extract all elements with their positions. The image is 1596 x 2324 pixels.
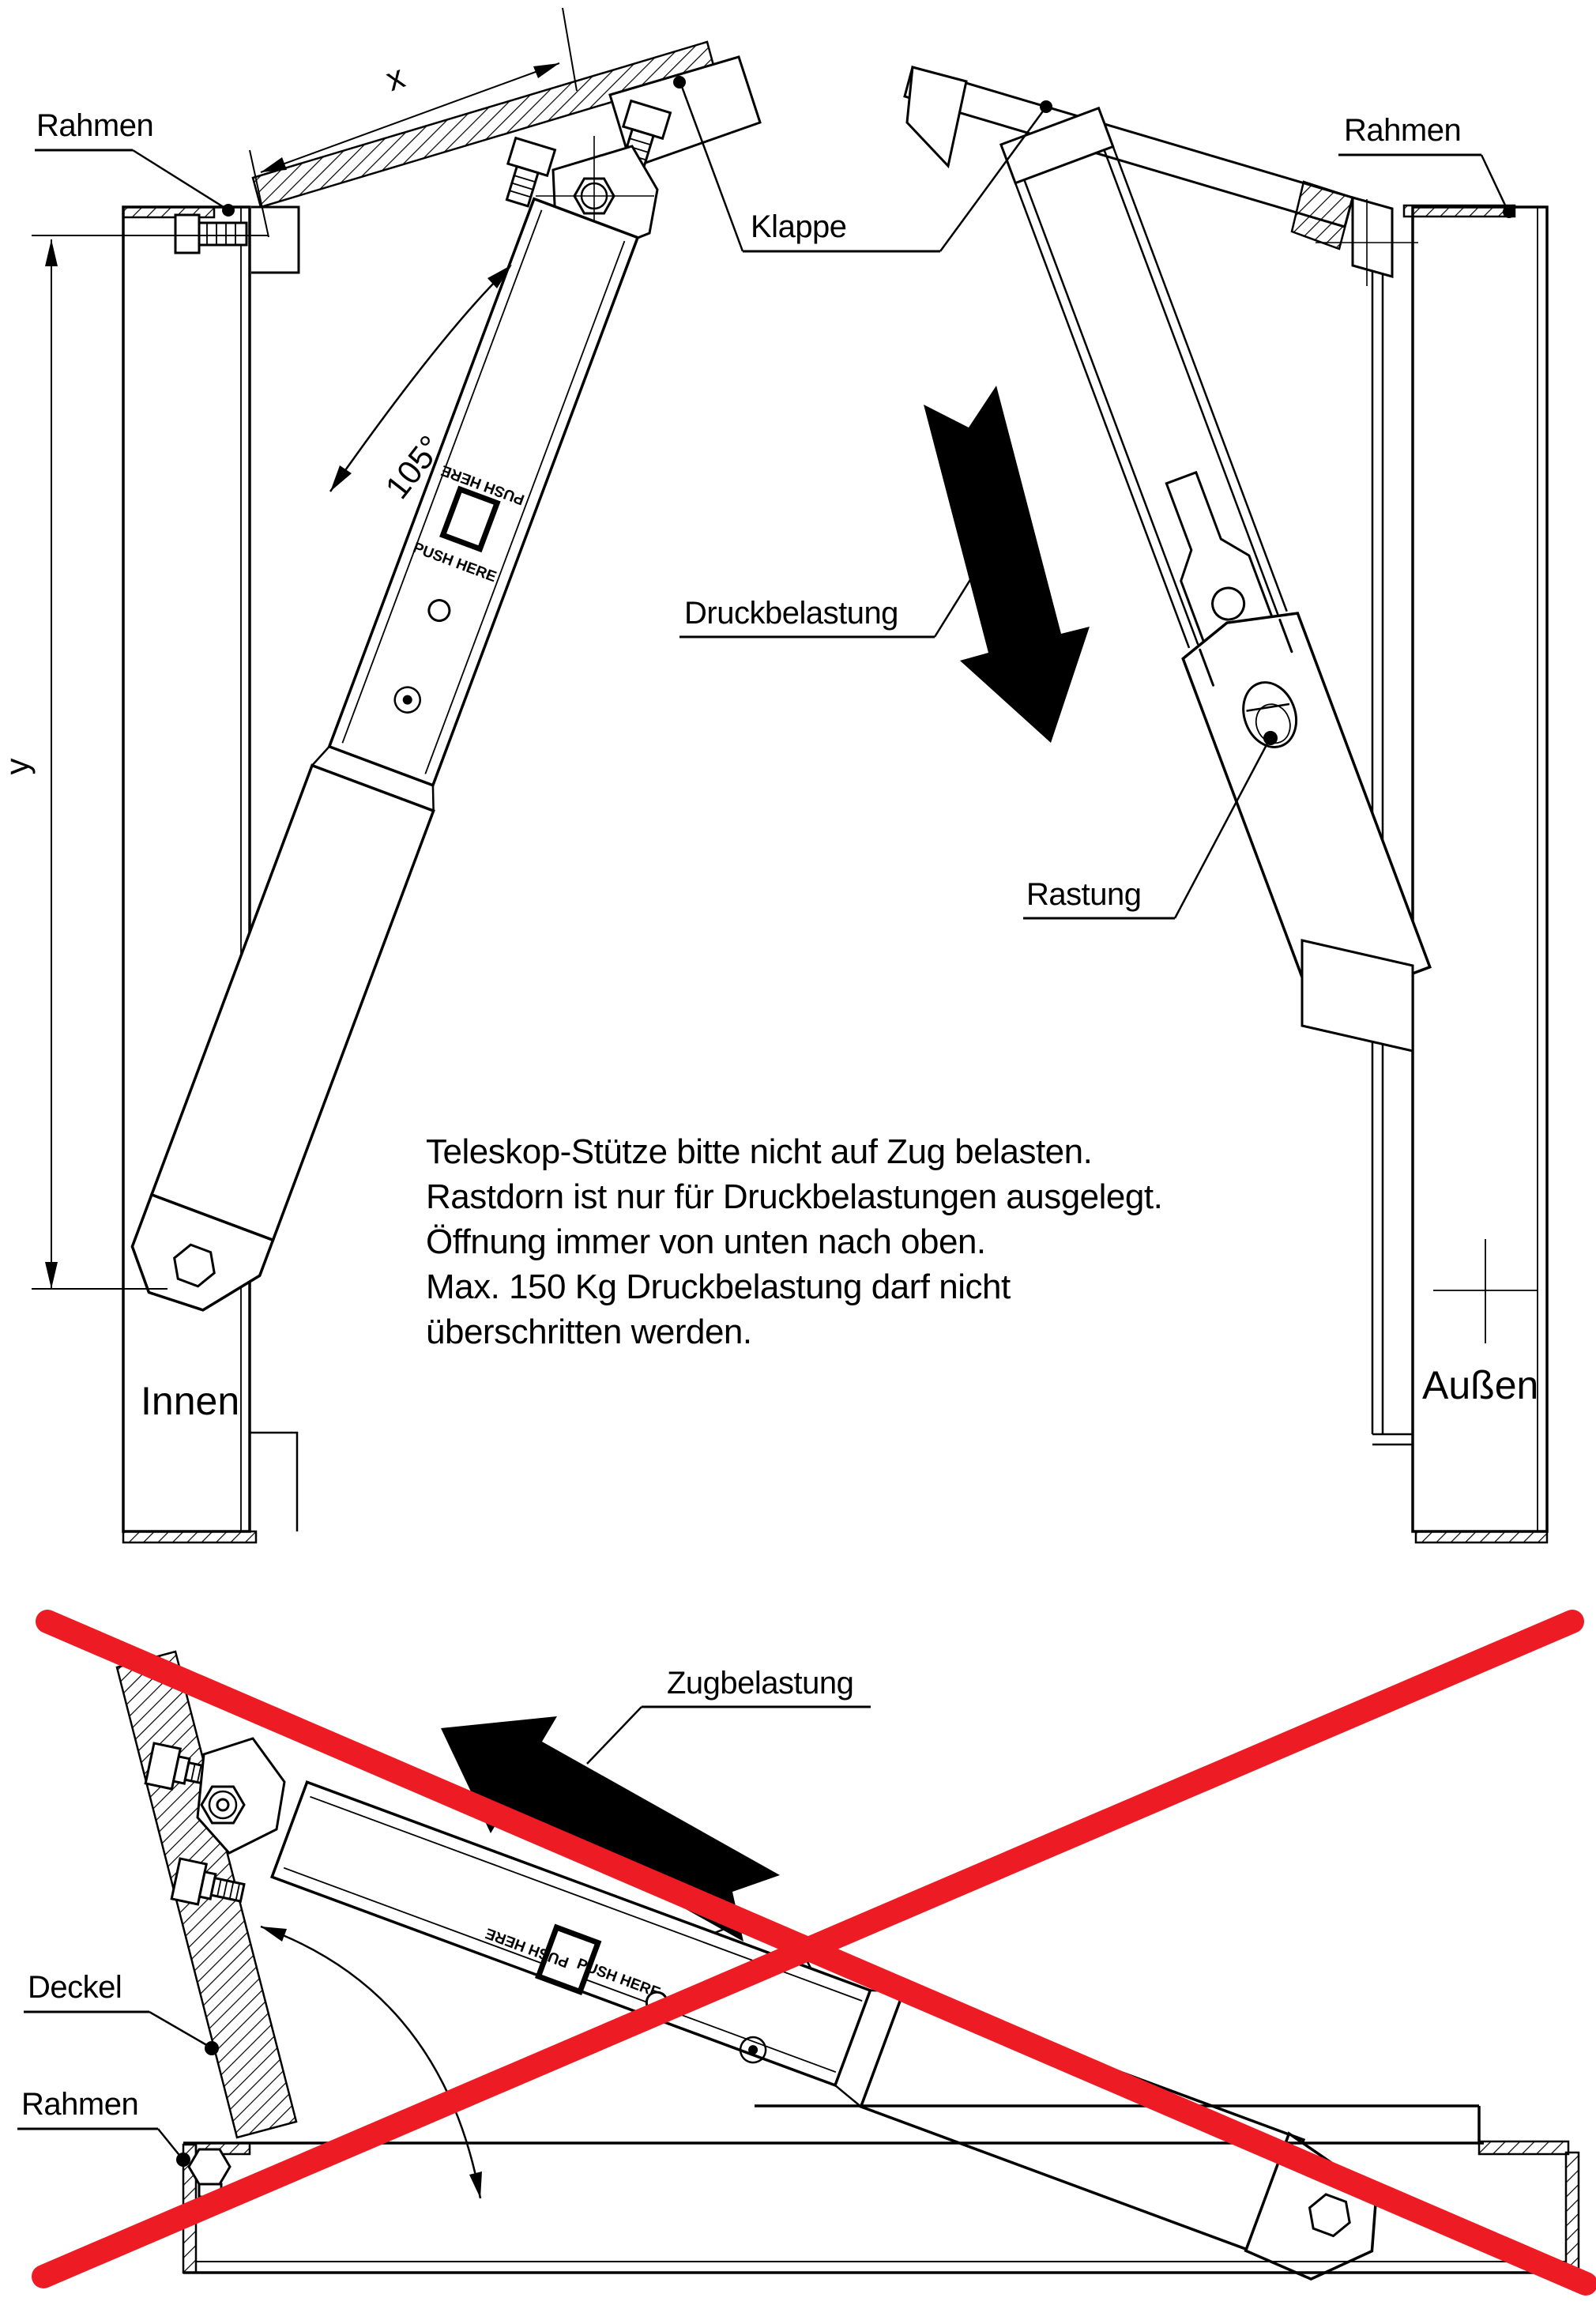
note-line-4: Max. 150 Kg Druckbelastung darf nicht	[426, 1267, 1011, 1306]
label-text: Klappe	[751, 209, 847, 244]
arrowhead-icon	[45, 1262, 58, 1289]
arrowhead-icon	[533, 63, 559, 78]
top-view-open-position: PUSH HERE PUSH HERE	[0, 8, 1547, 1542]
note-line-1: Teleskop-Stütze bitte nicht auf Zug bela…	[426, 1132, 1092, 1171]
right-frame-panel	[1413, 207, 1547, 1531]
left-frame-bottom-flange	[123, 1531, 256, 1542]
label-deckel: Deckel	[24, 1970, 219, 2055]
druckbelastung-arrow-icon	[924, 386, 1090, 743]
frame-bolt	[189, 2149, 230, 2184]
leader-dot	[673, 76, 686, 89]
right-flap-sheet	[905, 67, 1353, 227]
prohibition-cross-icon	[43, 1622, 1586, 2284]
left-flap	[175, 42, 760, 253]
label-text: Druckbelastung	[684, 596, 898, 631]
label-text: Deckel	[28, 1970, 122, 2005]
right-frame-bracket	[1353, 198, 1392, 277]
arrowhead-icon	[469, 2171, 482, 2198]
frame-right-wall	[1566, 2153, 1579, 2273]
label-text: Rahmen	[36, 108, 153, 143]
label-rahmen-bottom: Rahmen	[17, 2087, 190, 2167]
dim-x-label: x	[381, 58, 409, 98]
right-frame-top-flange	[1404, 205, 1515, 217]
arrowhead-icon	[45, 239, 58, 266]
leader-dot	[1503, 205, 1515, 218]
right-flap-hatched-end	[1292, 182, 1353, 249]
label-text: Zugbelastung	[667, 1666, 853, 1701]
arrowhead-icon	[261, 1927, 287, 1942]
warning-note: Teleskop-Stütze bitte nicht auf Zug bela…	[426, 1132, 1162, 1351]
label-innen: Innen	[141, 1379, 239, 1423]
leader-dot	[1263, 731, 1278, 745]
left-frame-top-flange	[123, 207, 214, 217]
leader-dot	[1040, 100, 1052, 113]
leader-dot	[222, 204, 235, 217]
label-text: Rahmen	[1344, 113, 1461, 148]
left-frame-panel	[123, 207, 250, 1531]
flap-bolt	[498, 138, 555, 209]
note-line-5: überschritten werden.	[426, 1313, 752, 1351]
label-text: Rahmen	[21, 2087, 138, 2122]
leader-dot	[205, 2041, 219, 2055]
right-frame	[1372, 205, 1547, 1542]
dim-y-label: y	[0, 759, 36, 775]
label-druckbelastung: Druckbelastung	[679, 566, 979, 637]
technical-drawing-page: PUSH HERE PUSH HERE	[0, 0, 1596, 2324]
bottom-view-closed-position: PUSH HERE PUSH HERE	[17, 1622, 1586, 2296]
leader-dot	[176, 2153, 190, 2167]
arrowhead-icon	[261, 157, 287, 172]
arrowhead-icon	[330, 465, 352, 492]
note-line-3: Öffnung immer von unten nach oben.	[426, 1222, 986, 1261]
label-rahmen-left: Rahmen	[35, 108, 235, 217]
lid-stay-diagram: PUSH HERE PUSH HERE	[0, 0, 1596, 2324]
note-line-2: Rastdorn ist nur für Druckbelastungen au…	[426, 1177, 1162, 1216]
label-text: Rastung	[1026, 877, 1141, 912]
right-flap	[905, 67, 1418, 286]
right-frame-bottom-flange	[1416, 1531, 1547, 1542]
right-flap-end-face	[907, 67, 966, 166]
label-aussen: Außen	[1422, 1363, 1538, 1407]
frame-right-flange	[1479, 2141, 1568, 2154]
label-zugbelastung: Zugbelastung	[587, 1666, 871, 1764]
bottom-strut-folded: PUSH HERE PUSH HERE	[266, 1768, 1402, 2296]
